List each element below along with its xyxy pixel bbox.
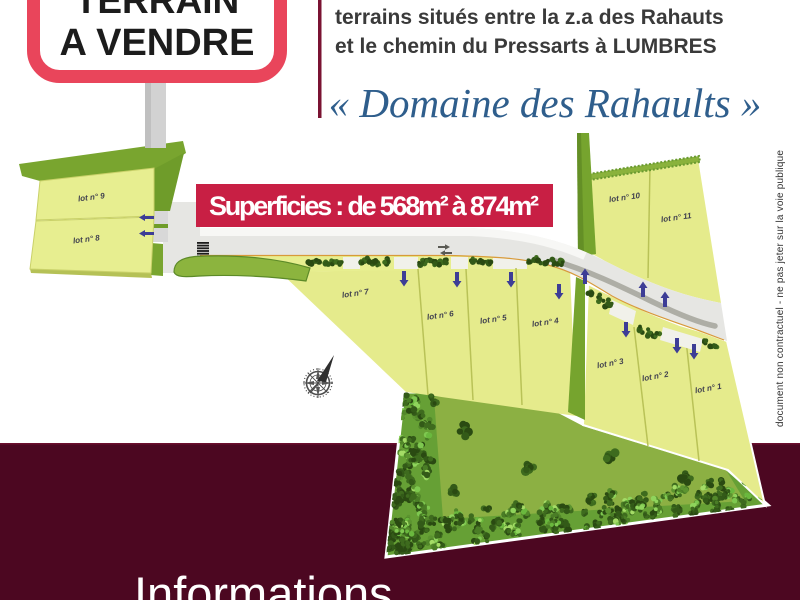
svg-text:et le chemin du Pressarts à LU: et le chemin du Pressarts à LUMBRES <box>335 35 717 58</box>
svg-text:A VENDRE: A VENDRE <box>60 22 255 64</box>
svg-text:terrains situés entre la z.a d: terrains situés entre la z.a des Rahauts <box>335 6 724 29</box>
svg-text:document non contractuel - n: document non contractuel - ne pas jeter … <box>775 150 786 427</box>
svg-text:« Domaine des Rahaults »: « Domaine des Rahaults » <box>329 80 762 126</box>
svg-text:Informations: Informations <box>134 567 393 600</box>
svg-text:TERRAIN: TERRAIN <box>75 0 239 21</box>
svg-text:Superficies : de 568m² à 874m²: Superficies : de 568m² à 874m² <box>209 191 539 221</box>
